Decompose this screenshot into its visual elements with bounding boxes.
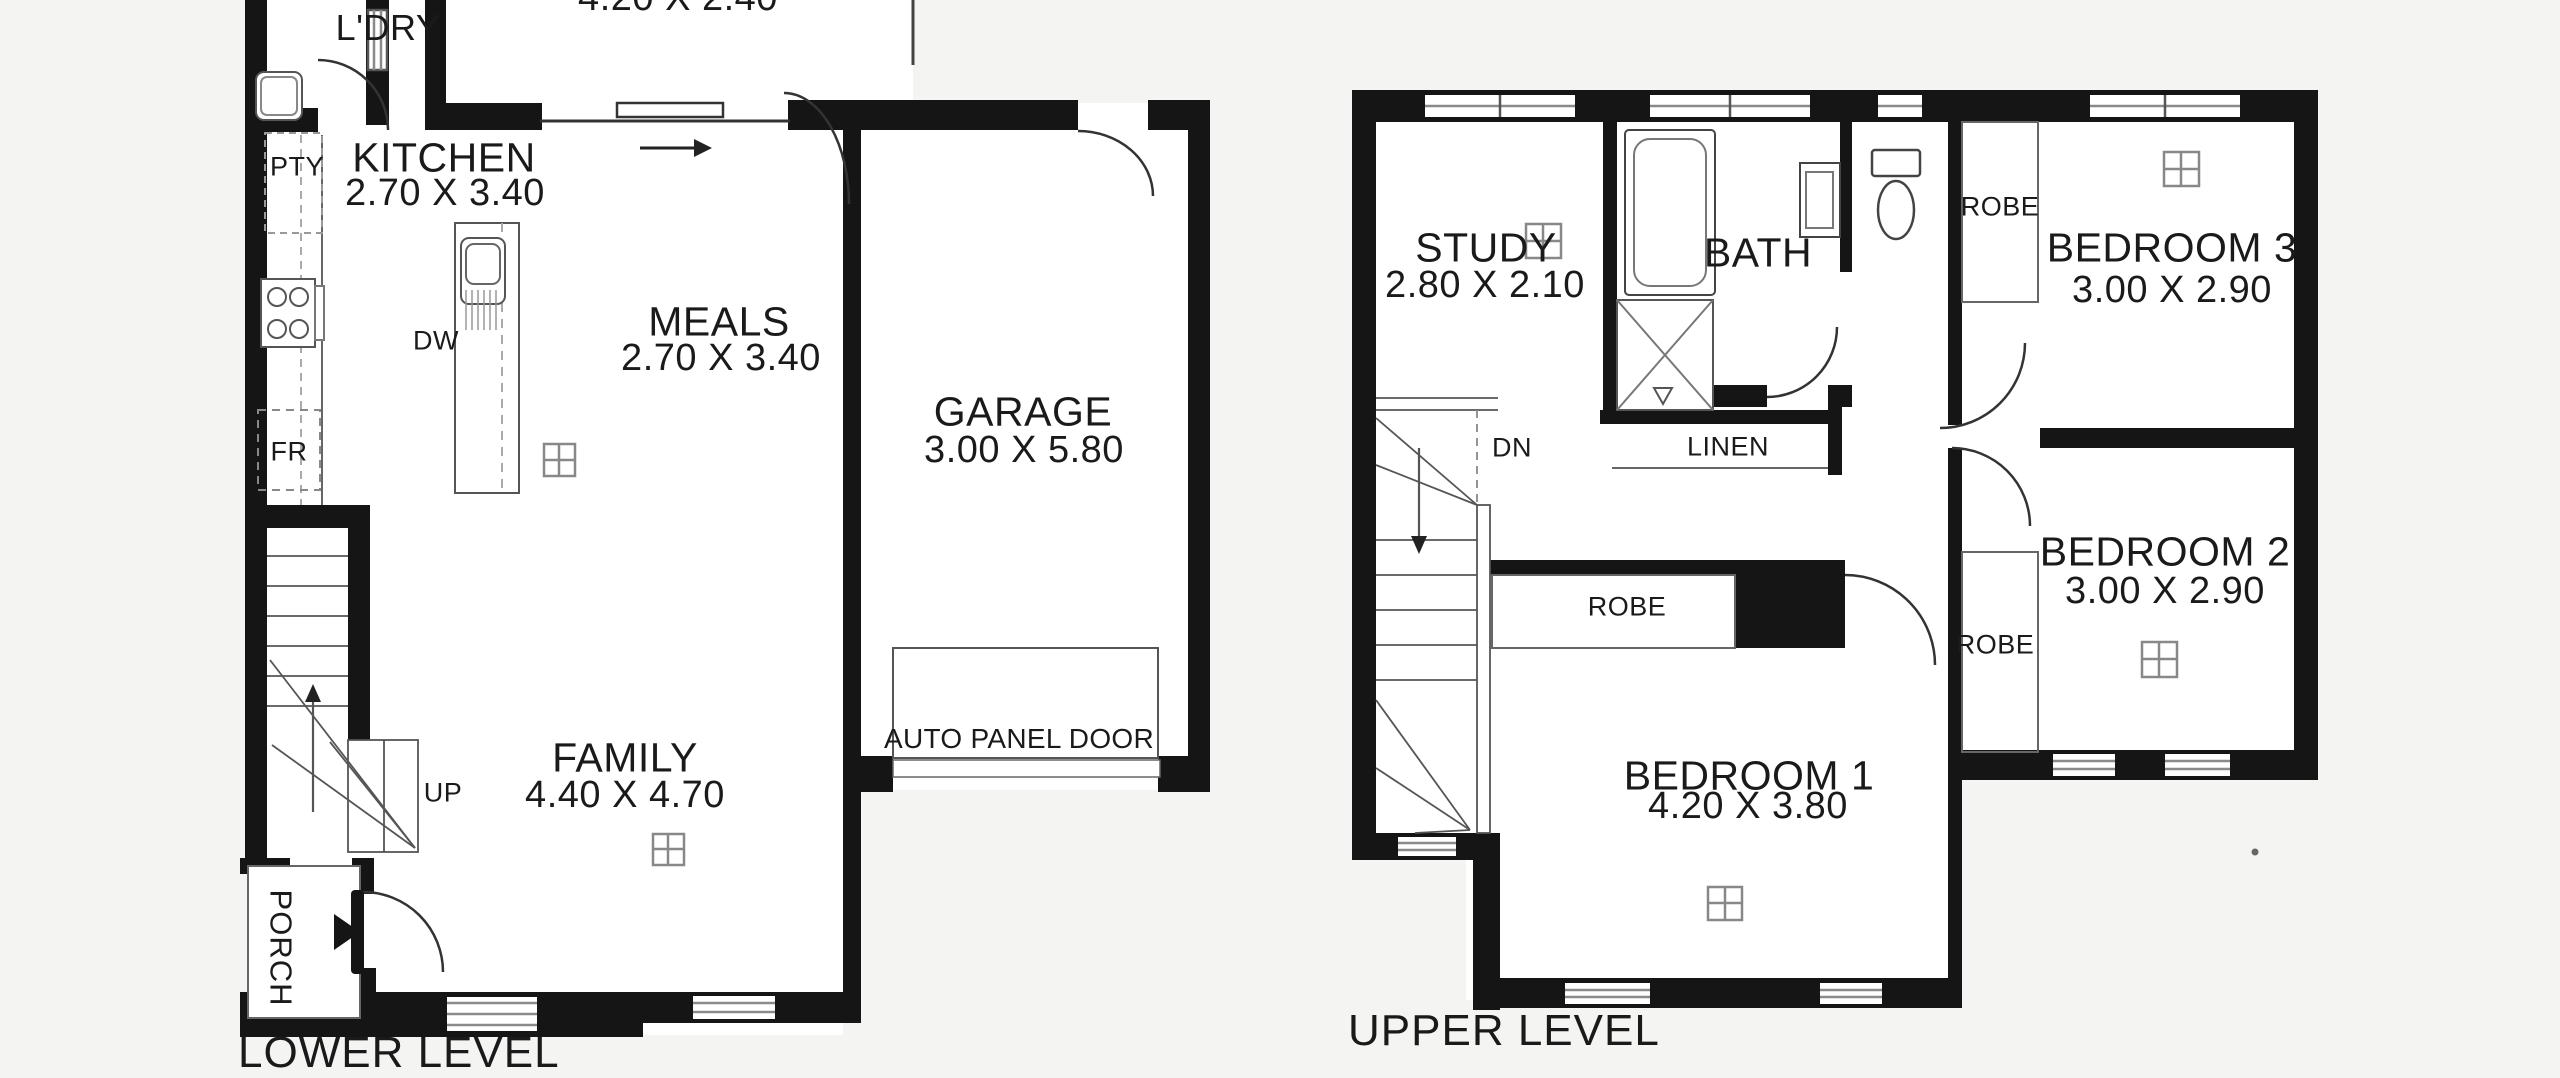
bedroom2-label: BEDROOM 2 bbox=[2040, 532, 2291, 573]
study-dims: 2.80 X 2.10 bbox=[1385, 266, 1585, 304]
robe-bedroom2-label: ROBE bbox=[1956, 632, 2035, 659]
kitchen-dims: 2.70 X 3.40 bbox=[345, 174, 545, 212]
lower-level-title: LOWER LEVEL bbox=[238, 1028, 560, 1078]
pantry-label: PTY bbox=[270, 154, 324, 181]
porch-label: PORCH bbox=[266, 890, 297, 1007]
garage-label: GARAGE bbox=[934, 392, 1112, 433]
bedroom3-label: BEDROOM 3 bbox=[2047, 228, 2298, 269]
shower bbox=[1617, 300, 1713, 410]
window-stair-landing bbox=[1398, 837, 1456, 856]
window-symbol-family bbox=[653, 834, 684, 865]
window-symbol-bedroom2 bbox=[2142, 642, 2177, 677]
dishwasher-label: DW bbox=[413, 328, 459, 355]
fridge-label: FR bbox=[271, 439, 308, 466]
meals-dims: 2.70 X 3.40 bbox=[621, 339, 821, 377]
window-bedroom2-a bbox=[2053, 754, 2115, 776]
bedroom3-dims: 3.00 X 2.90 bbox=[2072, 271, 2272, 309]
window-wc bbox=[1878, 95, 1922, 117]
window-study bbox=[1425, 95, 1575, 117]
robe-bedroom1-label: ROBE bbox=[1588, 594, 1667, 621]
window-symbol-bedroom1 bbox=[1708, 887, 1742, 920]
family-label: FAMILY bbox=[552, 738, 698, 779]
linen-label: LINEN bbox=[1687, 434, 1769, 461]
family-dims: 4.40 X 4.70 bbox=[525, 776, 725, 814]
window-family-bottom-1 bbox=[447, 997, 537, 1031]
vanity-basin bbox=[1800, 163, 1840, 237]
bedroom2-dims: 3.00 X 2.90 bbox=[2065, 572, 2265, 610]
cooktop bbox=[261, 279, 324, 347]
garage-dims: 3.00 X 5.80 bbox=[924, 431, 1124, 469]
window-family-bottom-2 bbox=[693, 996, 775, 1019]
window-symbol-meals bbox=[544, 444, 575, 476]
bathtub bbox=[1625, 130, 1715, 295]
window-bath bbox=[1650, 95, 1810, 117]
robe-bedroom3-label: ROBE bbox=[1961, 194, 2040, 221]
laundry-trough bbox=[256, 72, 302, 120]
auto-panel-door bbox=[893, 648, 1160, 777]
top-room-dims: 4.20 X 2.40 bbox=[578, 0, 778, 17]
up-label: UP bbox=[424, 780, 463, 807]
print-dot bbox=[2252, 849, 2259, 856]
window-bedroom1-a bbox=[1565, 983, 1650, 1004]
bath-label: BATH bbox=[1704, 233, 1812, 274]
dn-label: DN bbox=[1492, 435, 1532, 462]
upper-level-title: UPPER LEVEL bbox=[1348, 1006, 1660, 1056]
study-label: STUDY bbox=[1415, 228, 1556, 269]
floorplan-page: { "document": { "type": "real-estate flo… bbox=[0, 0, 2560, 1075]
bedroom1-dims: 4.20 X 3.80 bbox=[1648, 787, 1848, 825]
window-bedroom3 bbox=[2090, 95, 2240, 117]
laundry-label: L'DRY bbox=[336, 10, 441, 46]
auto-panel-door-label: AUTO PANEL DOOR bbox=[884, 725, 1154, 753]
island-bench bbox=[455, 223, 519, 493]
window-symbol-bedroom3 bbox=[2164, 152, 2199, 186]
window-bedroom2-b bbox=[2165, 754, 2230, 776]
window-bedroom1-b bbox=[1820, 983, 1882, 1004]
